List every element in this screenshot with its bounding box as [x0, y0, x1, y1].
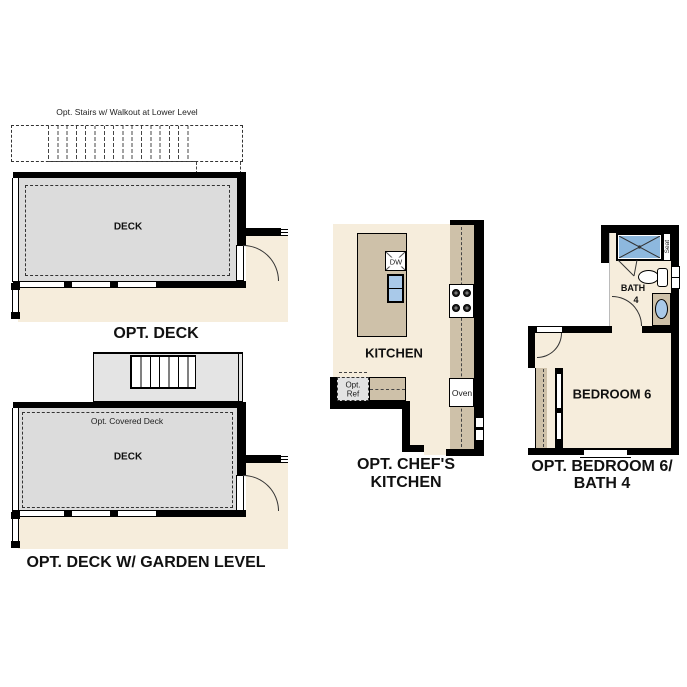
deck2-room-label: DECK — [114, 452, 142, 463]
deck1-side-railing — [12, 290, 19, 312]
deck1-bottom-wall — [161, 281, 246, 288]
deck1-interior-floor-bottom — [18, 288, 288, 322]
deck2-side-rail-cap — [11, 512, 20, 519]
bath-room-label: BATH — [621, 283, 645, 293]
oven: Oven — [449, 378, 474, 407]
kitchen-room-label: KITCHEN — [365, 346, 423, 361]
plan4-title-line2: BATH 4 — [574, 475, 631, 493]
deck2-rail-segment — [118, 510, 156, 517]
plan3-title-line2: KITCHEN — [370, 474, 441, 492]
floorplan-canvas: Opt. Stairs w/ Walkout at Lower Level DE… — [0, 0, 687, 687]
deck2-rail-segment — [72, 510, 110, 517]
deck2-house-wall — [237, 455, 281, 463]
deck2-rail-segment — [20, 510, 64, 517]
bedroom-room-label: BEDROOM 6 — [573, 387, 652, 402]
deck2-side-railing — [12, 519, 19, 541]
deck1-rail-post — [110, 281, 118, 288]
plan1-title: OPT. DECK — [113, 325, 198, 343]
burner — [463, 289, 471, 297]
bath-right-wall-upper — [671, 225, 679, 266]
cooktop — [449, 284, 474, 318]
deck1-rail-segment — [118, 281, 156, 288]
deck1-side-rail-cap — [11, 283, 20, 290]
covered-deck-label: Opt. Covered Deck — [91, 416, 163, 426]
oven-label: Oven — [452, 388, 472, 398]
fridge-label-line2: Ref — [347, 390, 359, 399]
deck2-rail-post — [110, 510, 118, 517]
kitchen-floor-opening — [424, 445, 446, 455]
closet-door-panel — [556, 373, 562, 409]
bath-window-frame-divider — [672, 277, 679, 278]
kitchen-sink — [387, 274, 404, 303]
deck2-left-railing — [12, 408, 19, 513]
burner — [452, 304, 460, 312]
kitchen-bottom-right-wall — [446, 449, 484, 456]
closet-door-panel — [556, 412, 562, 440]
bath-top-wall — [601, 225, 679, 233]
kitchen-door-frame-mark — [475, 417, 484, 428]
bedroom-left-wall-upper — [528, 326, 535, 368]
deck1-rail-segment — [72, 281, 110, 288]
kitchen-floor-walkway — [410, 402, 450, 449]
bath-door-opening — [612, 326, 642, 333]
kitchen-bottom-wall — [330, 401, 410, 409]
bedroom-right-wall — [671, 289, 679, 455]
plan2-title: OPT. DECK W/ GARDEN LEVEL — [26, 554, 265, 572]
burner — [463, 304, 471, 312]
shower-seat: Seat — [663, 233, 671, 261]
bath-left-wall — [601, 233, 609, 263]
bedroom-closet-strip — [535, 368, 547, 448]
optional-fridge: Opt. Ref — [337, 377, 369, 401]
plan3-title-line1: OPT. CHEF'S — [357, 456, 455, 474]
shower-pan — [619, 236, 660, 258]
deck1-rail-segment — [20, 281, 64, 288]
deck2-side-rail-cap — [11, 541, 20, 548]
shower — [616, 233, 663, 261]
deck1-room-label: DECK — [114, 222, 142, 233]
kitchen-door-frame-mark — [475, 429, 484, 441]
shower-x-mark — [619, 236, 660, 258]
deck2-bottom-wall — [161, 510, 246, 517]
kitchen-counter-right — [450, 225, 474, 449]
toilet-tank — [657, 268, 668, 287]
fridge-label-line1: Opt. — [345, 381, 360, 390]
deck1-side-rail-cap — [11, 312, 20, 319]
deck2-interior-floor-bottom — [18, 517, 288, 549]
bath-window-frame — [671, 266, 680, 289]
fridge-recess-dash — [339, 372, 367, 373]
deck1-left-railing — [12, 178, 19, 282]
burner — [452, 289, 460, 297]
kitchen-counter-centerline — [461, 227, 462, 447]
deck2-rail-post — [64, 510, 72, 517]
shower-seat-label: Seat — [664, 240, 671, 253]
bedroom-top-wall-seg — [642, 326, 679, 333]
garden-stairs-inner-line — [238, 353, 239, 402]
toilet-bowl — [638, 270, 659, 284]
bedroom-closet-dashline — [543, 369, 544, 447]
opt-stairs-treads — [48, 126, 196, 162]
plan4-title-line1: OPT. BEDROOM 6/ — [531, 458, 672, 476]
deck1-house-wall — [237, 228, 281, 236]
deck2-right-wall — [237, 402, 246, 475]
kitchen-counter-bottom-centerline — [370, 389, 405, 390]
deck1-rail-post — [64, 281, 72, 288]
bedroom-door-leaf — [537, 326, 562, 333]
kitchen-bottom-wall-piece — [402, 445, 424, 452]
dishwasher: DW — [385, 251, 406, 271]
deck1-door-frame-mark — [281, 228, 288, 236]
vanity-sink — [655, 299, 668, 319]
garden-stairs-treads — [130, 355, 196, 389]
bath-room-number: 4 — [633, 295, 638, 305]
bath-vanity — [652, 293, 671, 326]
deck2-door-frame-mark — [281, 455, 288, 463]
kitchen-sink-divider — [389, 288, 402, 289]
bedroom-top-wall-seg — [562, 326, 612, 333]
opt-stairs-label: Opt. Stairs w/ Walkout at Lower Level — [56, 107, 197, 117]
dishwasher-label: DW — [389, 258, 404, 267]
